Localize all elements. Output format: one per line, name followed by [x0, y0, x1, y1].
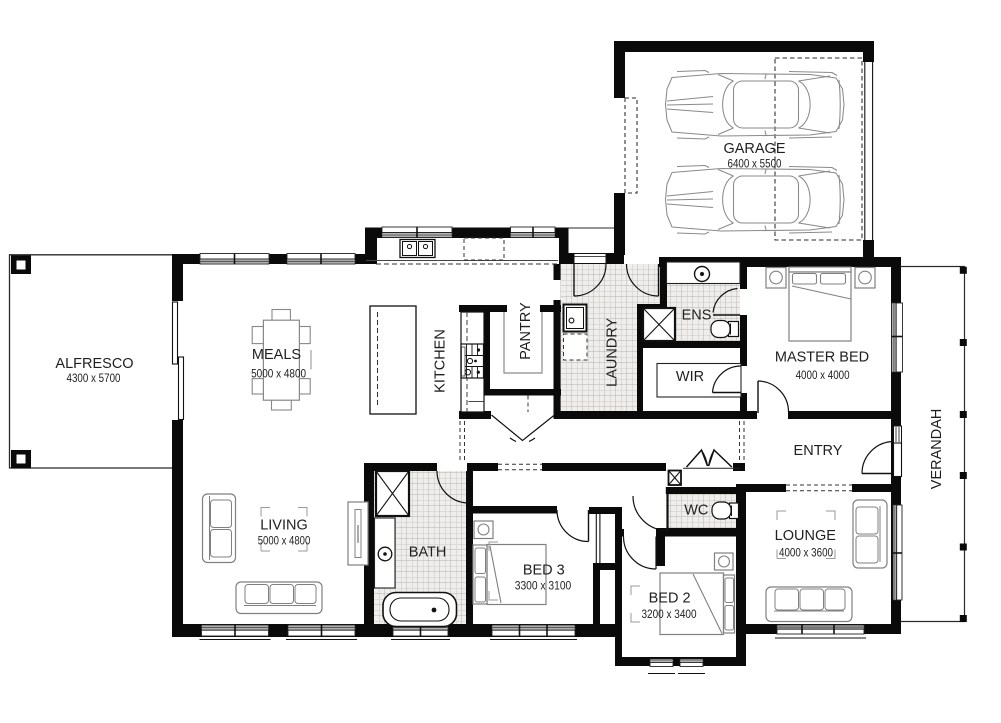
svg-text:LOUNGE: LOUNGE [775, 528, 837, 544]
svg-text:3200 x 3400: 3200 x 3400 [642, 607, 697, 621]
svg-text:ALFRESCO: ALFRESCO [55, 356, 133, 372]
svg-text:LIVING: LIVING [260, 518, 308, 534]
svg-text:5000 x 4800: 5000 x 4800 [258, 534, 311, 548]
svg-text:BED 3: BED 3 [523, 563, 565, 579]
svg-text:MASTER BED: MASTER BED [775, 349, 869, 365]
svg-text:VERANDAH: VERANDAH [929, 409, 945, 490]
svg-text:3300 x 3100: 3300 x 3100 [515, 579, 572, 593]
svg-text:6400 x 5500: 6400 x 5500 [728, 157, 782, 171]
svg-text:BED 2: BED 2 [649, 591, 691, 607]
svg-text:GARAGE: GARAGE [723, 141, 785, 157]
svg-text:4000 x 4000: 4000 x 4000 [796, 368, 850, 382]
svg-text:ENS: ENS [682, 308, 712, 324]
svg-text:ENTRY: ENTRY [794, 443, 843, 459]
svg-text:WIR: WIR [676, 369, 704, 385]
svg-text:PANTRY: PANTRY [518, 302, 534, 360]
svg-text:LAUNDRY: LAUNDRY [605, 317, 621, 386]
svg-text:WC: WC [684, 503, 708, 519]
svg-text:MEALS: MEALS [252, 347, 301, 363]
svg-text:BATH: BATH [409, 545, 447, 561]
svg-text:5000 x 4800: 5000 x 4800 [251, 367, 306, 381]
svg-text:KITCHEN: KITCHEN [433, 329, 449, 393]
svg-text:4300 x 5700: 4300 x 5700 [67, 371, 121, 385]
svg-text:4000 x 3600: 4000 x 3600 [779, 546, 833, 560]
